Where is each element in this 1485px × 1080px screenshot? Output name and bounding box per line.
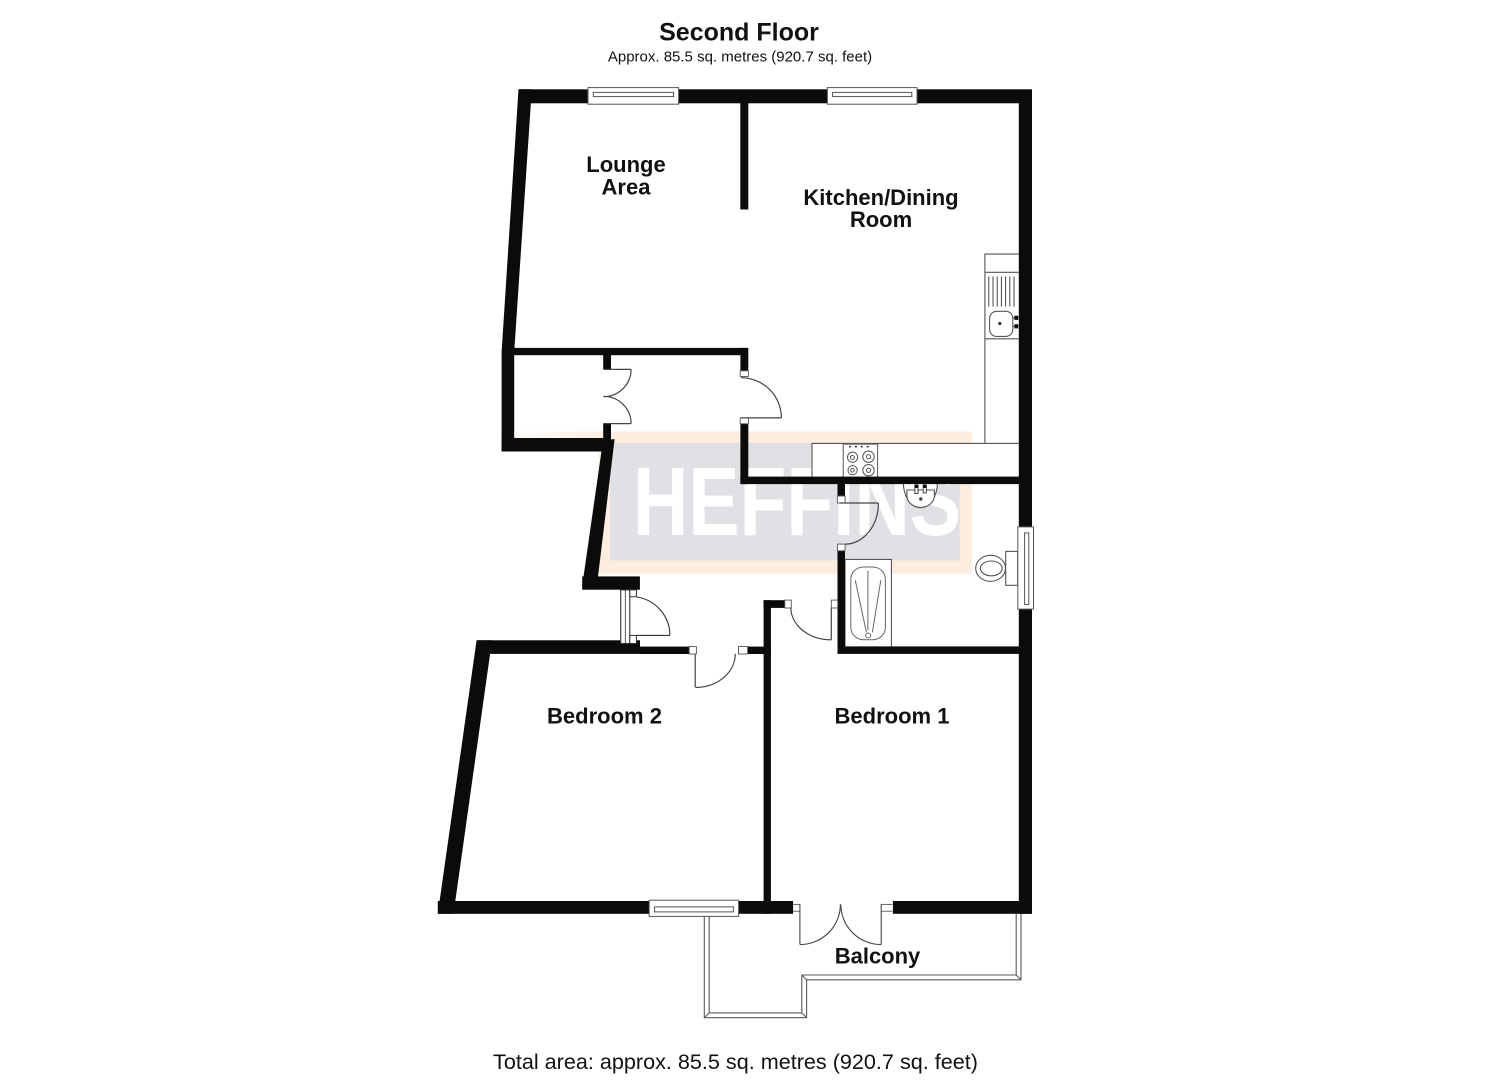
svg-text:Room: Room [850, 207, 912, 232]
svg-text:Lounge: Lounge [586, 152, 665, 177]
svg-text:Approx. 85.5 sq. metres (920.7: Approx. 85.5 sq. metres (920.7 sq. feet) [608, 48, 872, 65]
svg-text:Second Floor: Second Floor [659, 18, 819, 46]
svg-text:Bedroom 1: Bedroom 1 [835, 704, 950, 729]
svg-text:Bedroom 2: Bedroom 2 [547, 704, 662, 729]
svg-text:Total area: approx. 85.5 sq. m: Total area: approx. 85.5 sq. metres (920… [493, 1049, 978, 1074]
svg-text:Area: Area [602, 175, 652, 200]
svg-text:Balcony: Balcony [835, 944, 921, 969]
